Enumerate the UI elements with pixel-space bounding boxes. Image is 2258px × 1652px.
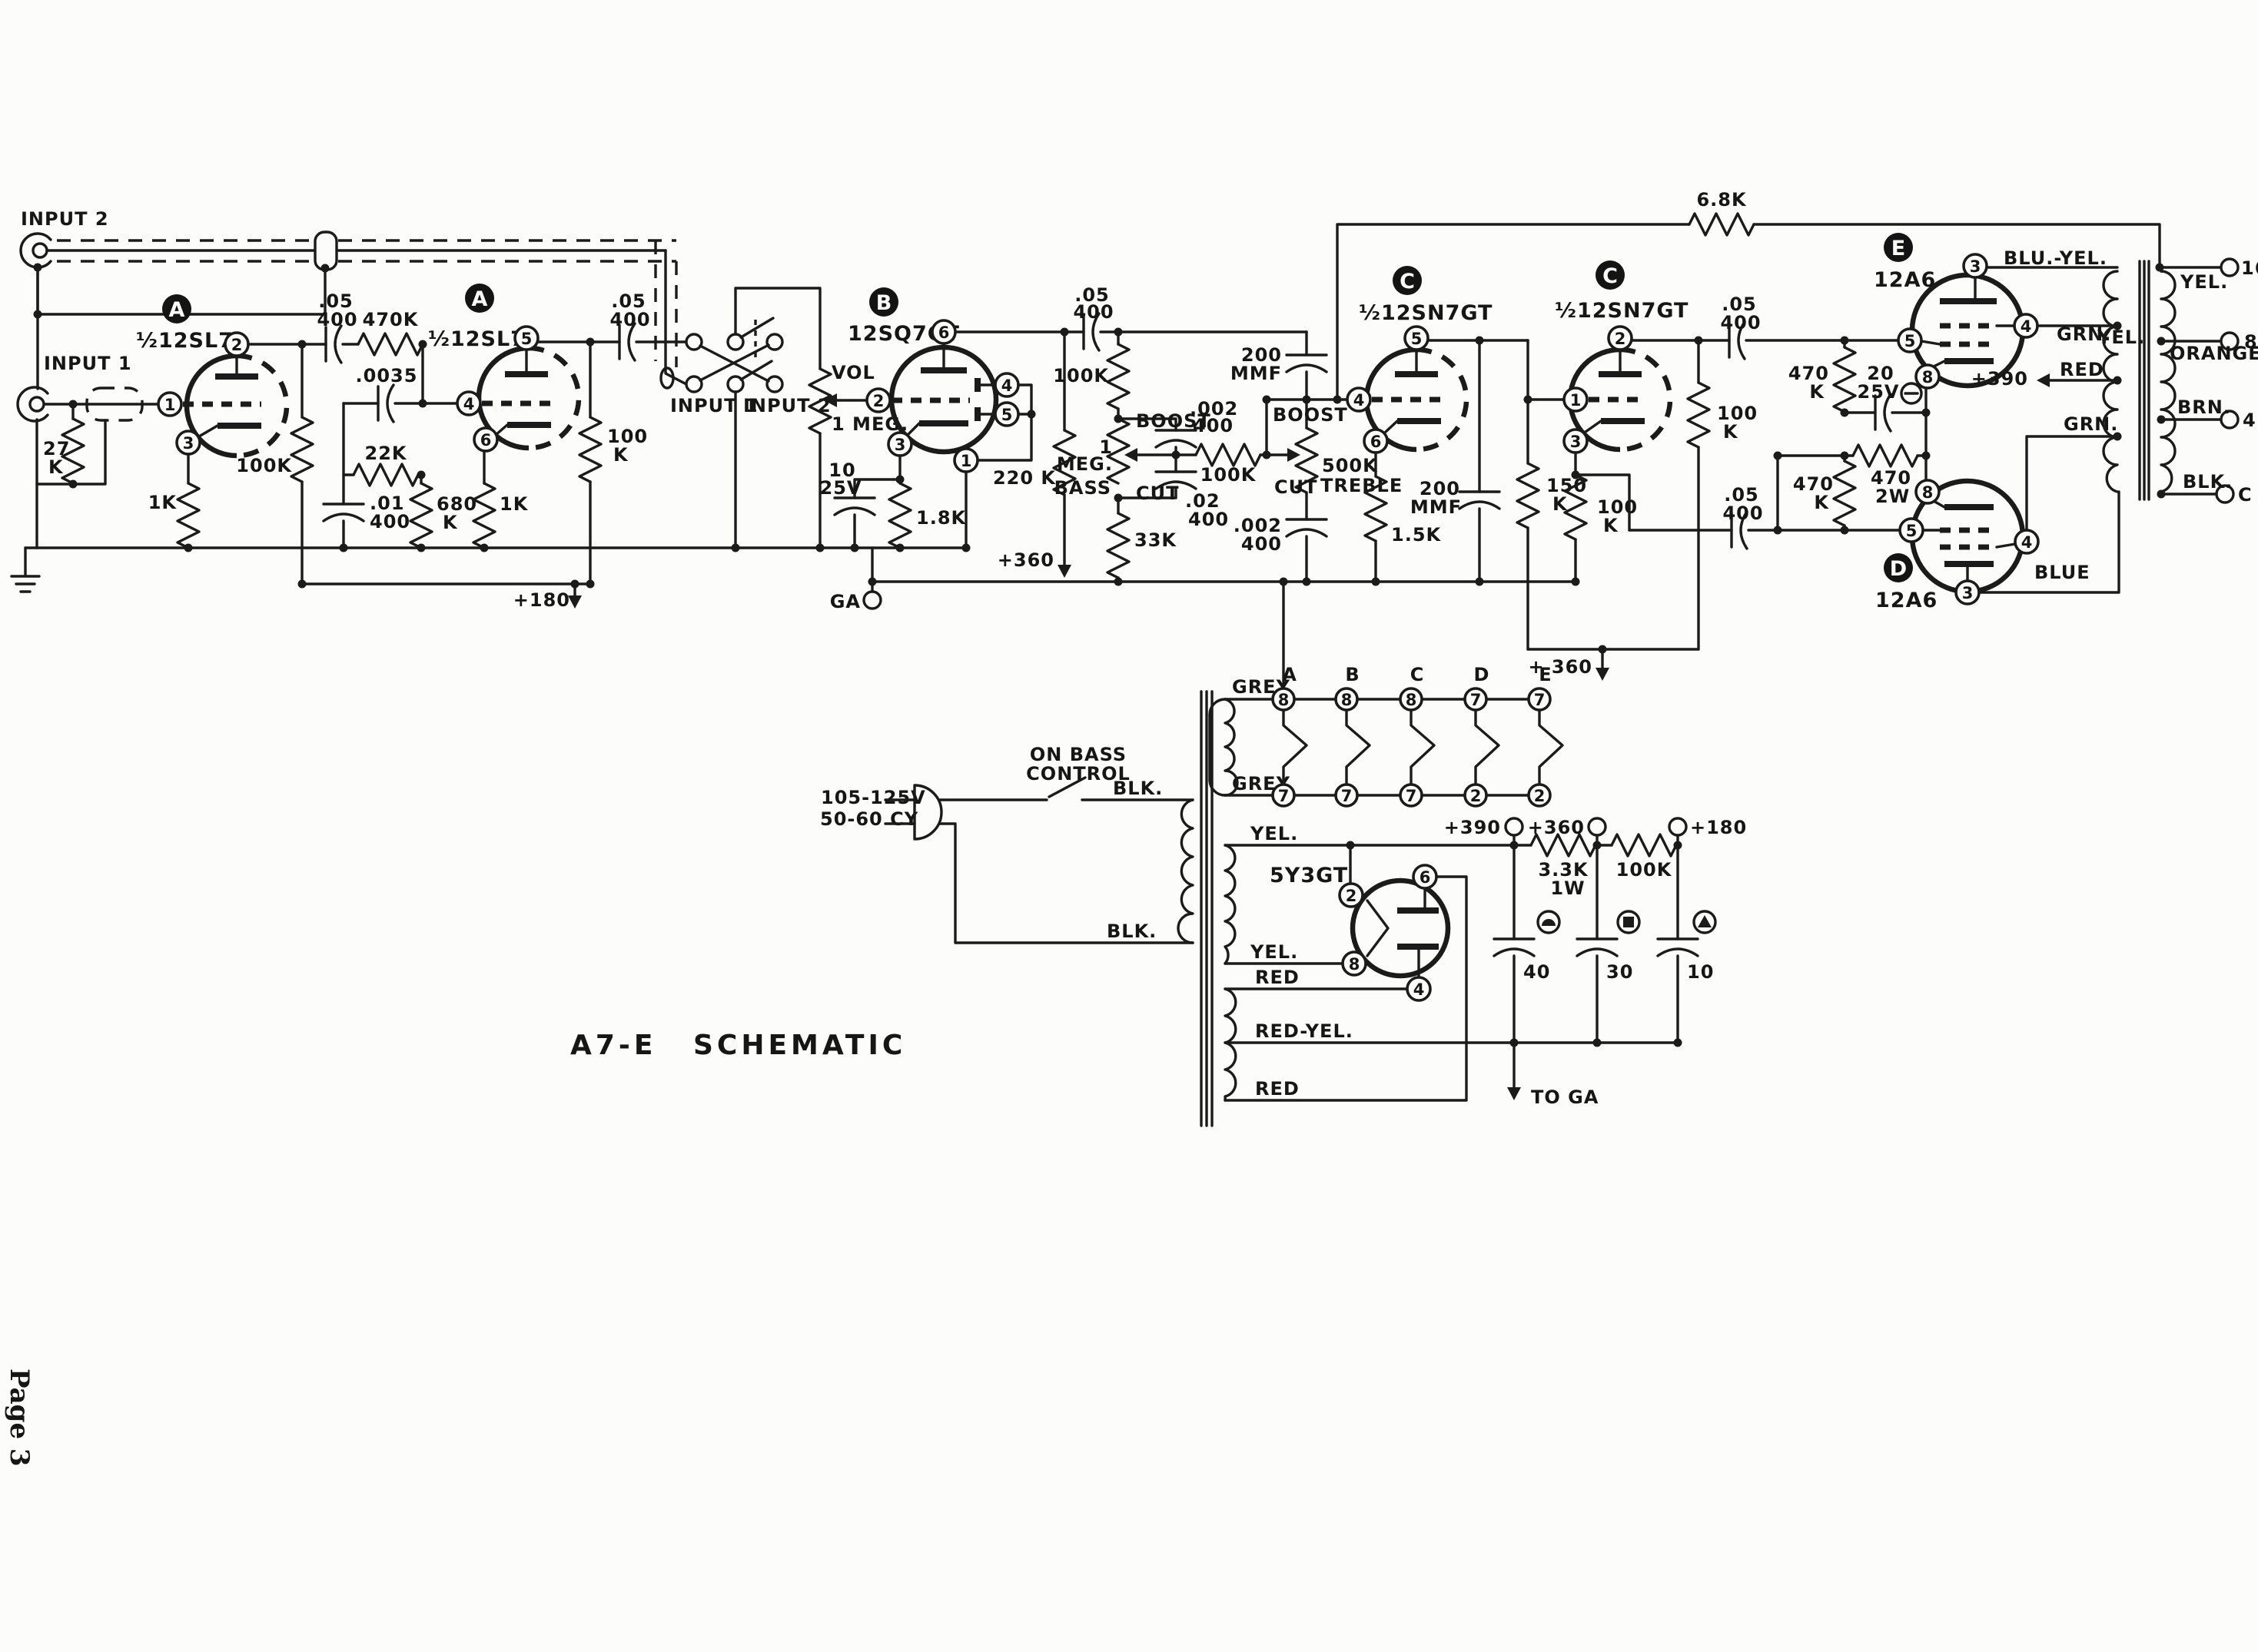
- svg-text:8: 8: [1278, 691, 1290, 709]
- power-supply: 105-125V 50-60 CY ON BASS CONTROL BLK. B…: [820, 692, 1747, 1126]
- svg-text:8: 8: [1922, 483, 1934, 502]
- svg-text:BASS: BASS: [1054, 477, 1111, 499]
- svg-text:7: 7: [1278, 787, 1290, 805]
- svg-text:+ 360: + 360: [1528, 656, 1592, 678]
- schematic-drawing: INPUT 2 INPUT 1 27 K A ½12SL7 2 1 3 1K 1…: [0, 0, 2258, 1652]
- svg-text:30: 30: [1606, 961, 1633, 983]
- blu-yel-label: BLU.-YEL.: [2004, 247, 2107, 269]
- resistor-470k-d-grid: 470 K: [1793, 456, 1855, 530]
- svg-text:470K: 470K: [363, 309, 419, 330]
- svg-text:2W: 2W: [1875, 486, 1910, 507]
- svg-text:4: 4: [1001, 377, 1013, 395]
- pt-primary: [1178, 800, 1193, 943]
- svg-text:2: 2: [873, 392, 885, 410]
- svg-text:GA: GA: [830, 591, 861, 612]
- svg-text:3: 3: [895, 436, 906, 454]
- stage-a1: A ½12SL7 2 1 3 1K 100K: [136, 294, 313, 589]
- svg-text:400: 400: [1073, 301, 1114, 323]
- svg-text:6: 6: [1370, 433, 1382, 451]
- svg-text:3: 3: [1962, 584, 1974, 602]
- svg-text:6: 6: [480, 431, 492, 449]
- svg-text:MMF: MMF: [1410, 496, 1462, 518]
- resistor-1k-a1: 1K: [148, 454, 199, 552]
- svg-text:400: 400: [1188, 509, 1229, 530]
- svg-text:5: 5: [1904, 332, 1916, 350]
- svg-text:400: 400: [1193, 415, 1234, 436]
- svg-text:YEL.: YEL.: [1250, 941, 1298, 963]
- svg-text:10: 10: [1687, 961, 1714, 983]
- tube-c1-name: ½12SN7GT: [1359, 301, 1493, 325]
- svg-text:3: 3: [1970, 257, 1981, 276]
- svg-text:1.5K: 1.5K: [1391, 524, 1442, 546]
- svg-text:5: 5: [1906, 522, 1918, 540]
- svg-text:400: 400: [317, 309, 357, 330]
- svg-text:1: 1: [961, 452, 972, 470]
- svg-text:5: 5: [521, 330, 533, 348]
- output-transformer: YEL. 16 ORANGE 8 BRN. 4 BLK. C: [2104, 257, 2258, 506]
- ot-secondary: [2161, 271, 2175, 492]
- svg-text:8: 8: [1922, 368, 1934, 386]
- svg-text:RED: RED: [1255, 1078, 1300, 1100]
- svg-text:400: 400: [1241, 533, 1282, 555]
- svg-text:8: 8: [1406, 691, 1417, 709]
- svg-text:2: 2: [231, 336, 243, 354]
- terminal-390: [1506, 818, 1522, 835]
- input1-jack: [18, 387, 48, 421]
- svg-text:BLUE: BLUE: [2034, 562, 2090, 583]
- svg-text:C: C: [2238, 484, 2253, 506]
- svg-text:1K: 1K: [500, 493, 529, 515]
- svg-text:100K: 100K: [236, 455, 292, 476]
- svg-text:YEL.: YEL.: [2180, 271, 2228, 293]
- svg-text:+390: +390: [1971, 368, 2028, 390]
- terminal-360: [1589, 818, 1606, 835]
- svg-text:C: C: [1410, 664, 1425, 685]
- svg-text:2: 2: [1534, 787, 1546, 805]
- page-number: Page 3: [4, 1368, 35, 1467]
- pt-hv-winding: [1225, 989, 1236, 1100]
- svg-text:+180: +180: [1690, 817, 1747, 838]
- svg-text:CUT: CUT: [1136, 483, 1179, 504]
- svg-text:+360: +360: [1528, 817, 1585, 838]
- svg-text:E: E: [1891, 237, 1905, 260]
- svg-text:K: K: [48, 456, 64, 478]
- svg-text:400: 400: [609, 309, 650, 330]
- svg-text:12A6: 12A6: [1874, 268, 1936, 292]
- svg-text:ON BASS: ON BASS: [1030, 744, 1127, 765]
- svg-text:1.8K: 1.8K: [916, 507, 967, 529]
- ground-symbol: [12, 548, 39, 592]
- svg-text:CUT: CUT: [1274, 476, 1317, 498]
- svg-text:4: 4: [463, 395, 475, 413]
- switch-input2-label: INPUT 2: [743, 395, 832, 416]
- svg-text:+390: +390: [1444, 817, 1501, 838]
- plus180-label: +180: [513, 589, 570, 611]
- svg-text:12A6: 12A6: [1875, 589, 1938, 612]
- svg-text:MEG.: MEG.: [1057, 453, 1113, 475]
- svg-text:B: B: [876, 291, 892, 315]
- svg-text:100K: 100K: [1616, 859, 1672, 881]
- to-ga-label: TO GA: [1531, 1086, 1599, 1108]
- svg-text:2: 2: [1615, 330, 1626, 348]
- cap-section-semicircle-icon: [1538, 911, 1559, 933]
- svg-text:105-125V: 105-125V: [821, 787, 926, 808]
- svg-text:K: K: [613, 444, 629, 466]
- svg-text:YEL.: YEL.: [1250, 823, 1298, 844]
- power-transformer: [1178, 692, 1237, 1126]
- svg-text:8: 8: [1349, 955, 1360, 974]
- svg-text:GRN.: GRN.: [2064, 413, 2118, 435]
- svg-text:3: 3: [1570, 433, 1582, 451]
- schematic-page: INPUT 2 INPUT 1 27 K A ½12SL7 2 1 3 1K 1…: [0, 0, 2258, 1652]
- svg-text:33K: 33K: [1134, 529, 1177, 551]
- svg-text:6: 6: [1420, 868, 1431, 887]
- svg-text:B: B: [1345, 664, 1360, 685]
- filament: [1367, 901, 1388, 956]
- svg-text:7: 7: [1470, 691, 1482, 709]
- shield-termination: [661, 368, 673, 388]
- input-switch: INPUT 1 INPUT 2: [670, 288, 832, 552]
- svg-text:1K: 1K: [148, 492, 178, 513]
- page-title: A7-E SCHEMATIC: [570, 1030, 906, 1061]
- svg-text:100K: 100K: [1200, 464, 1257, 486]
- svg-text:+360: +360: [998, 549, 1054, 571]
- svg-text:K: K: [1723, 421, 1738, 443]
- svg-text:MMF: MMF: [1230, 363, 1282, 384]
- resistor-1k-a2: 1K: [473, 451, 529, 552]
- resistor-27k: 27 K: [43, 400, 84, 489]
- svg-text:K: K: [1814, 492, 1829, 513]
- cap-section-square-icon: [1618, 911, 1639, 933]
- svg-text:8: 8: [1341, 691, 1353, 709]
- input1-label: INPUT 1: [44, 353, 132, 374]
- svg-text:C: C: [1400, 270, 1415, 294]
- resistor-100k-a2: 100 K: [579, 342, 648, 589]
- svg-text:BRN.: BRN.: [2177, 396, 2231, 418]
- svg-text:400: 400: [1722, 503, 1763, 524]
- svg-text:RED: RED: [2060, 359, 2104, 380]
- svg-text:A: A: [169, 298, 185, 322]
- svg-text:D: D: [1890, 557, 1907, 581]
- svg-text:BOOST: BOOST: [1273, 404, 1348, 426]
- svg-text:8: 8: [2244, 331, 2258, 353]
- svg-text:50-60 CY: 50-60 CY: [820, 808, 918, 830]
- svg-text:.0035: .0035: [356, 365, 418, 386]
- stage-c1: C ½12SN7GT 5 4 6 1.5K 200 MMF 150 K: [1347, 266, 1587, 649]
- input-section: INPUT 2 INPUT 1 27 K: [18, 208, 686, 548]
- svg-text:7: 7: [1406, 787, 1417, 805]
- svg-text:BLK.: BLK.: [2183, 471, 2233, 493]
- svg-text:500K: 500K: [1322, 455, 1378, 476]
- minus-symbol-icon: [1901, 383, 1921, 403]
- stage-c2: C ½12SN7GT 2 1 3 100 K 100 K + 360 .05 4…: [1528, 260, 1898, 678]
- svg-text:K: K: [1603, 515, 1619, 536]
- feedback-resistor-label: 6.8K: [1696, 189, 1747, 211]
- tube-c2-name: ½12SN7GT: [1555, 299, 1689, 323]
- svg-text:2: 2: [1470, 787, 1482, 805]
- svg-text:400: 400: [370, 511, 410, 532]
- stage-b: B 12SQ7GT 6 2 4 5 3 1 1.8K 10 25V .05 40…: [820, 284, 1307, 612]
- svg-text:BLK.: BLK.: [1107, 921, 1157, 942]
- ot-core: [2140, 261, 2149, 499]
- svg-text:7: 7: [1341, 787, 1353, 805]
- svg-text:4: 4: [2021, 533, 2033, 552]
- resistor-470k-e-grid: 470 K: [1788, 340, 1855, 413]
- svg-text:BLK.: BLK.: [1113, 778, 1163, 799]
- svg-text:25V: 25V: [820, 477, 862, 499]
- svg-text:5Y3GT: 5Y3GT: [1270, 864, 1348, 887]
- svg-text:RED-YEL.: RED-YEL.: [1255, 1020, 1353, 1042]
- svg-text:A: A: [472, 287, 488, 311]
- svg-text:25V: 25V: [1858, 381, 1900, 403]
- svg-text:1: 1: [164, 396, 176, 414]
- svg-text:5: 5: [1001, 406, 1013, 424]
- svg-text:6: 6: [938, 323, 950, 342]
- tone-controls: 100K 1 MEG. BASS BOOST .002 400 CUT .02 …: [1053, 332, 1403, 586]
- svg-text:VOL: VOL: [832, 362, 875, 383]
- svg-text:RED: RED: [1255, 967, 1300, 988]
- cap-section-triangle-icon: [1694, 911, 1715, 933]
- svg-text:TREBLE: TREBLE: [1320, 475, 1403, 496]
- svg-text:4: 4: [2021, 317, 2032, 336]
- svg-text:4: 4: [1413, 980, 1425, 999]
- svg-text:A: A: [1282, 664, 1297, 685]
- svg-text:4: 4: [2243, 410, 2256, 431]
- svg-text:400: 400: [1720, 312, 1761, 333]
- svg-text:3: 3: [183, 434, 194, 453]
- svg-text:1W: 1W: [1550, 877, 1585, 899]
- svg-text:K: K: [1809, 381, 1825, 403]
- svg-text:C: C: [1602, 264, 1618, 288]
- pt-5v-winding: [1225, 845, 1235, 964]
- ga-terminal: [864, 592, 881, 609]
- tube-a2-name: ½12SL7: [428, 327, 526, 351]
- svg-text:40: 40: [1523, 961, 1550, 983]
- stage-a2: A ½12SL7 5 4 6 1K 100 K .05 400 +180: [428, 284, 686, 611]
- svg-text:22K: 22K: [365, 443, 407, 464]
- svg-text:16: 16: [2241, 257, 2258, 279]
- svg-text:100K: 100K: [1053, 365, 1109, 386]
- svg-text:7: 7: [1534, 691, 1546, 709]
- tube-a1-name: ½12SL7: [136, 329, 234, 353]
- svg-text:4: 4: [1353, 391, 1365, 410]
- ground-buses: [12, 548, 1698, 681]
- svg-text:D: D: [1474, 664, 1490, 685]
- svg-text:1: 1: [1570, 391, 1582, 410]
- svg-text:5: 5: [1411, 330, 1423, 348]
- heater-string: GREY GREY A B C D E 8 8 8 7 7 7 7 7 2 2: [1210, 578, 1562, 807]
- svg-text:2: 2: [1346, 887, 1357, 905]
- terminal-180: [1669, 818, 1686, 835]
- svg-text:K: K: [443, 512, 458, 533]
- output-stage: 6.8K 470 K 20 25V 470 2W 470 K .05 400 E…: [1337, 189, 2160, 612]
- input2-label: INPUT 2: [21, 208, 109, 230]
- svg-text:220 K: 220 K: [993, 467, 1056, 489]
- svg-text:E: E: [1539, 664, 1552, 685]
